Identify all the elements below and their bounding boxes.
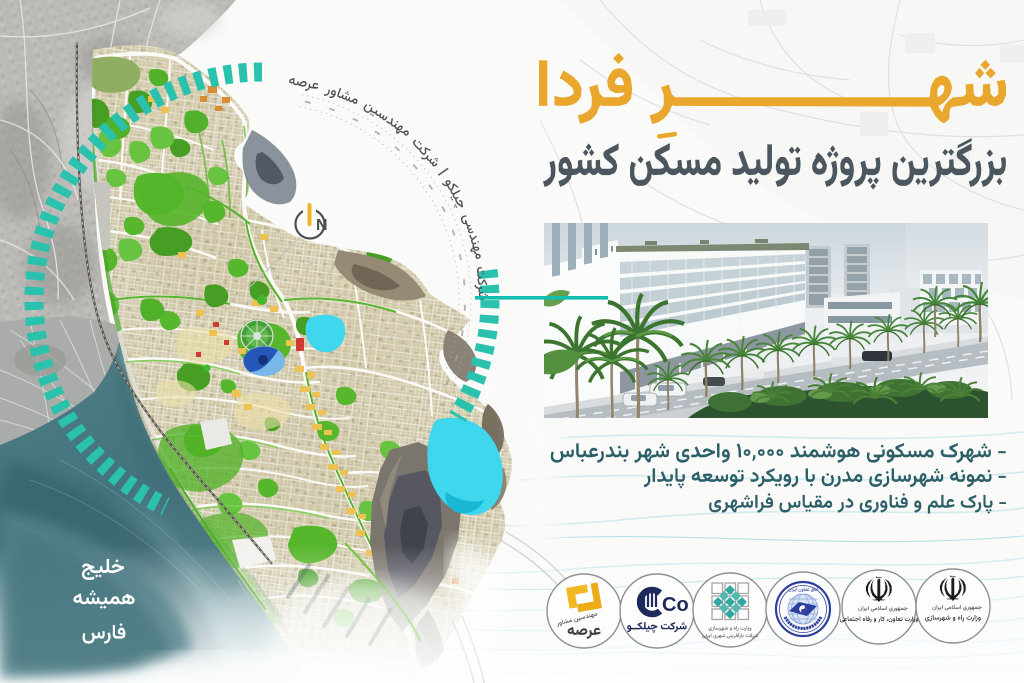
svg-text:N: N <box>316 217 328 234</box>
svg-text:Co: Co <box>662 594 689 616</box>
